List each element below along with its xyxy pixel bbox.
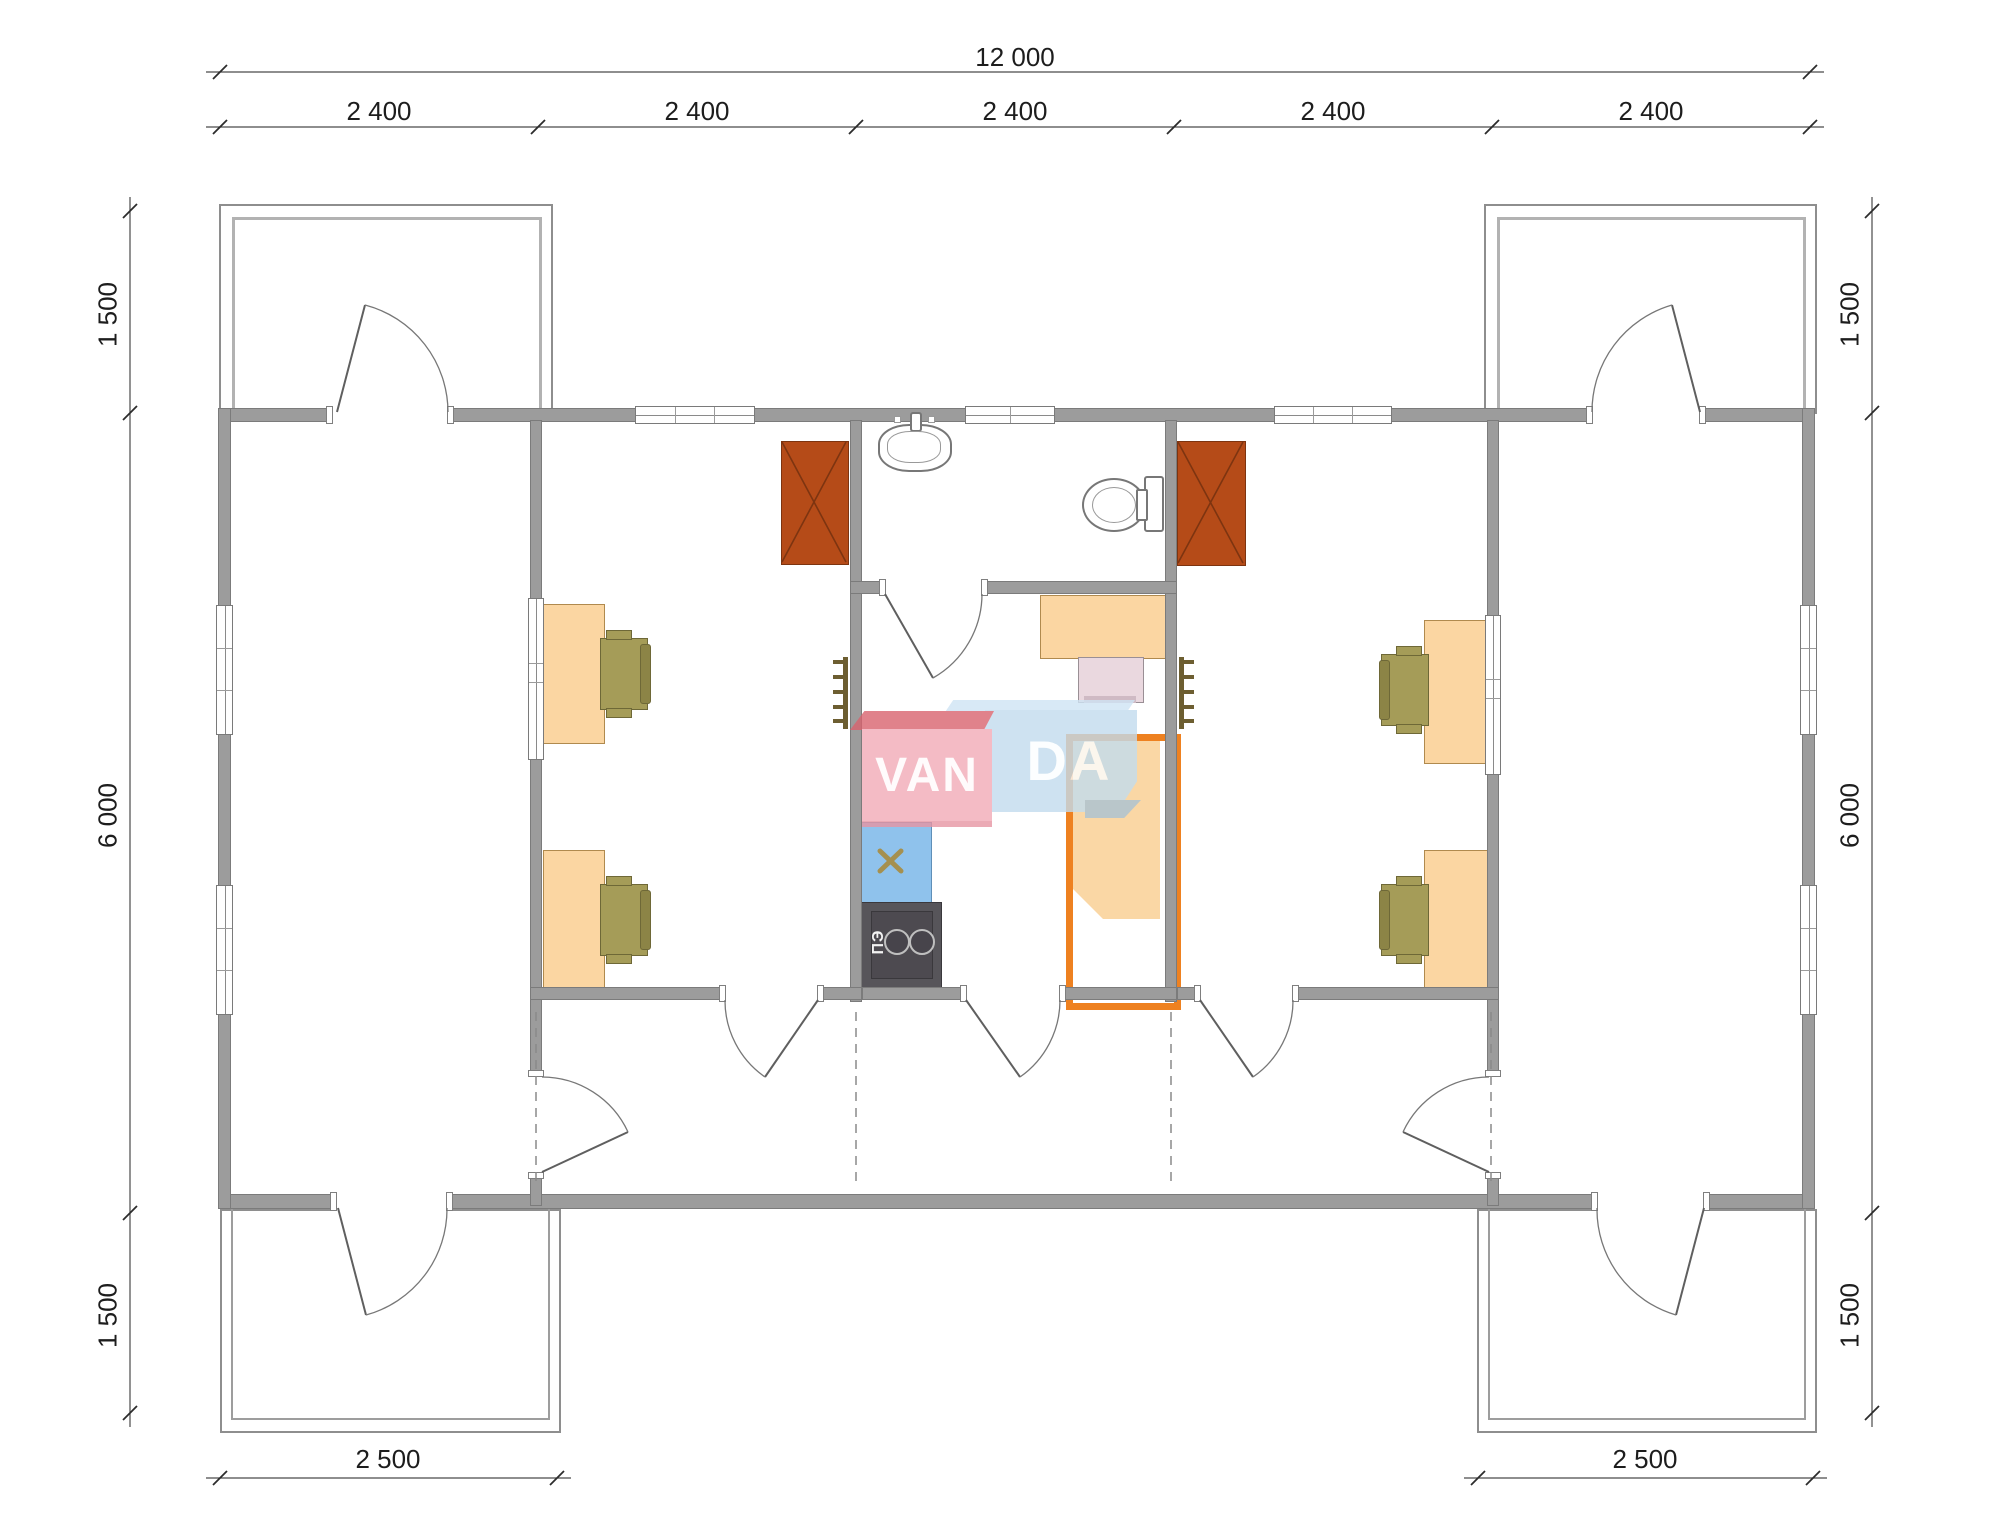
dim-label-right-top: 1 500 [1835,255,1866,375]
dim-label-segment-5: 2 400 [1591,96,1711,127]
stove-burners [885,930,934,954]
door-arc-hall-west [542,1077,628,1132]
door-arc-hall-east [1403,1077,1489,1132]
door-leaf-kitchen [966,1000,1020,1077]
dim-label-segment-3: 2 400 [955,96,1075,127]
sink-cross-icon [880,851,901,871]
door-arc-bathroom [933,594,982,678]
dim-label-porch-west: 2 500 [328,1444,448,1475]
dim-label-left-top: 1 500 [93,255,124,375]
door-arc-porch-west [366,1208,447,1315]
door-leaf-hall-east [1403,1132,1489,1172]
door-leaf-room-west [765,1000,818,1077]
wardrobe-x-marks [782,442,1243,563]
door-leaf-porch-east [1676,1208,1704,1315]
dimension-ticks [123,65,1879,1485]
floor-plan-canvas: ПЭ [0,0,2000,1524]
dim-label-left-bottom: 1 500 [93,1256,124,1376]
door-leaf-bathroom [885,594,933,678]
dim-label-porch-east: 2 500 [1585,1444,1705,1475]
dim-label-segment-2: 2 400 [637,96,757,127]
dim-label-segment-1: 2 400 [319,96,439,127]
door-leaves [337,305,1704,1315]
door-arc-room-west [725,1000,765,1077]
door-arc-room-east [1253,1000,1293,1077]
door-arc-terrace-east [1592,305,1672,412]
door-leaf-hall-west [542,1132,628,1172]
dim-label-right-middle: 6 000 [1835,756,1866,876]
open-boundary-dashed-lines [536,1012,1491,1186]
dim-label-left-middle: 6 000 [93,756,124,876]
plan-linework [0,0,2000,1524]
door-arc-porch-east [1597,1208,1676,1315]
dim-label-right-bottom: 1 500 [1835,1256,1866,1376]
door-leaf-room-east [1200,1000,1253,1077]
dim-label-total-width: 12 000 [955,42,1075,73]
door-arc-kitchen [1020,1000,1060,1077]
dim-label-segment-4: 2 400 [1273,96,1393,127]
door-leaf-terrace-west [337,305,365,412]
door-leaf-terrace-east [1672,305,1700,412]
dimension-lines [130,72,1872,1478]
door-leaf-porch-west [338,1208,366,1315]
door-arc-terrace-west [365,305,448,412]
